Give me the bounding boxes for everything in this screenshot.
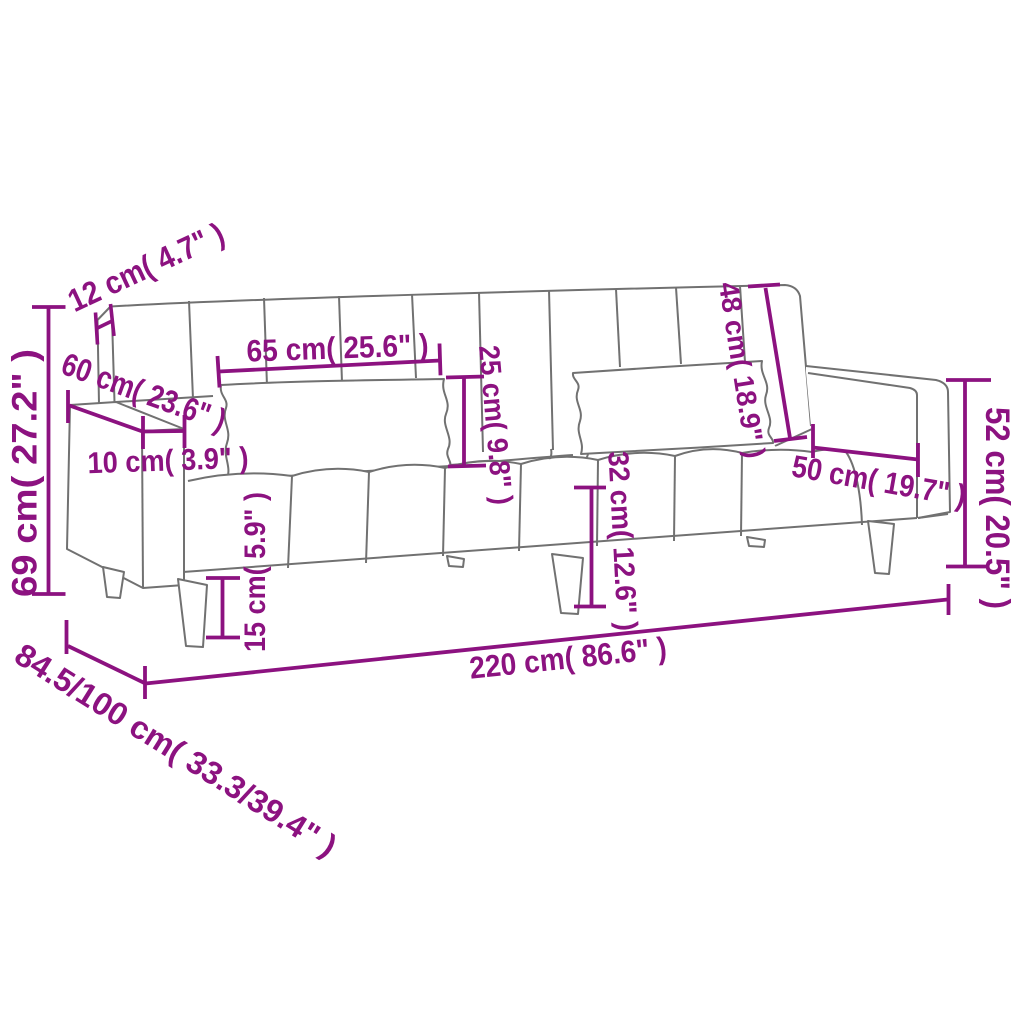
svg-text:69 cm( 27.2" ): 69 cm( 27.2" ) <box>6 349 45 597</box>
svg-text:10 cm( 3.9" ): 10 cm( 3.9" ) <box>87 442 249 481</box>
svg-text:65 cm( 25.6" ): 65 cm( 25.6" ) <box>246 327 429 368</box>
svg-text:52 cm( 20.5" ): 52 cm( 20.5" ) <box>978 407 1016 609</box>
svg-text:84.5/100 cm( 33.3/39.4" ): 84.5/100 cm( 33.3/39.4" ) <box>9 636 344 864</box>
svg-text:15 cm( 5.9" ): 15 cm( 5.9" ) <box>239 492 272 652</box>
